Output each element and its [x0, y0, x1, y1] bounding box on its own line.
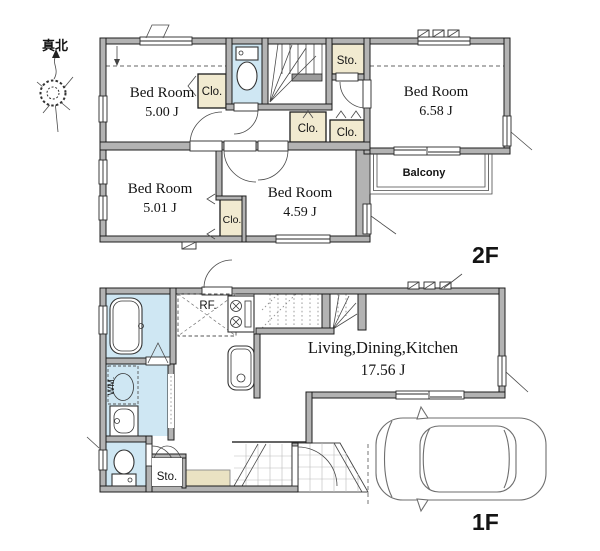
door-bedroom-se: [258, 141, 288, 151]
toilet-fixture-2f: [236, 47, 258, 90]
compass: 真北: [37, 38, 73, 132]
door-bedroom-ne: [363, 80, 371, 108]
compass-label: 真北: [42, 38, 68, 53]
vanity-basin: [110, 406, 138, 436]
bedroom-ne-area: 6.58 J: [419, 104, 453, 119]
closet-hall-right-label: Clo.: [337, 127, 357, 139]
grille-windows-2f: [418, 30, 459, 37]
washroom-sliding-opening: [168, 374, 174, 428]
genkan-step: [184, 470, 230, 488]
window-annotation-se: [371, 216, 396, 234]
floor-1f-label: 1F: [472, 509, 499, 535]
bedroom-sw-name: Bed Room: [128, 181, 193, 197]
floorplan-drawing: 真北: [0, 0, 600, 551]
bathtub: [110, 298, 144, 354]
storage-2f-label: Sto.: [337, 55, 357, 67]
bedroom-se-area: 4.59 J: [283, 205, 317, 220]
grille-windows-1f: [408, 274, 462, 289]
compass-sun-outer: [41, 81, 66, 106]
ldk-name: Living,Dining,Kitchen: [308, 338, 458, 357]
door-toilet-2f: [234, 103, 258, 111]
bedroom-ne-name: Bed Room: [404, 84, 469, 100]
compass-needle: [54, 56, 56, 79]
bedroom-se-name: Bed Room: [268, 185, 333, 201]
balcony-label: Balcony: [403, 167, 447, 179]
closet-nw-label: Clo.: [202, 86, 222, 98]
bathroom-door-opening: [146, 357, 170, 365]
storage-1f-label: Sto.: [157, 471, 177, 483]
door-storage-2f: [336, 73, 358, 81]
toilet-fixture-1f: [112, 450, 136, 486]
slider-window-ldk-south: [396, 391, 464, 399]
floor-2f-label: 2F: [472, 242, 499, 268]
closet-hall-left-label: Clo.: [298, 123, 318, 135]
bedroom-nw-name: Bed Room: [130, 85, 195, 101]
car-icon: [376, 407, 546, 511]
stove: [228, 296, 254, 332]
ldk-area: 17.56 J: [361, 362, 406, 379]
window-annotation-toilet: [87, 437, 99, 448]
storage-1f-box: Sto.: [152, 458, 182, 486]
door-bedroom-sw: [224, 141, 256, 151]
floor-2f: Balcony Bed Room 5.00 J Bed Room 6.58 J …: [99, 25, 532, 268]
floorplan-page: 真北: [0, 0, 600, 551]
door-toilet-1f: [146, 444, 152, 466]
door-bedroom-nw: [190, 141, 222, 151]
kitchen-sink: [228, 346, 254, 390]
window-annotation-ne: [511, 132, 532, 150]
floor-1f: WM. Sto. RF.: [87, 260, 546, 535]
bedroom-nw-area: 5.00 J: [145, 105, 179, 120]
washing-machine-label: WM.: [106, 377, 116, 396]
window-annotation-ldk: [506, 372, 528, 392]
bedroom-sw-area: 5.01 J: [143, 201, 177, 216]
balcony-2f: Balcony: [370, 154, 492, 194]
closet-sw-label: Clo.: [223, 214, 242, 226]
entrance-door: [292, 446, 298, 486]
refrigerator-label: RF.: [199, 300, 216, 312]
roof-vent-outline: [146, 25, 169, 38]
